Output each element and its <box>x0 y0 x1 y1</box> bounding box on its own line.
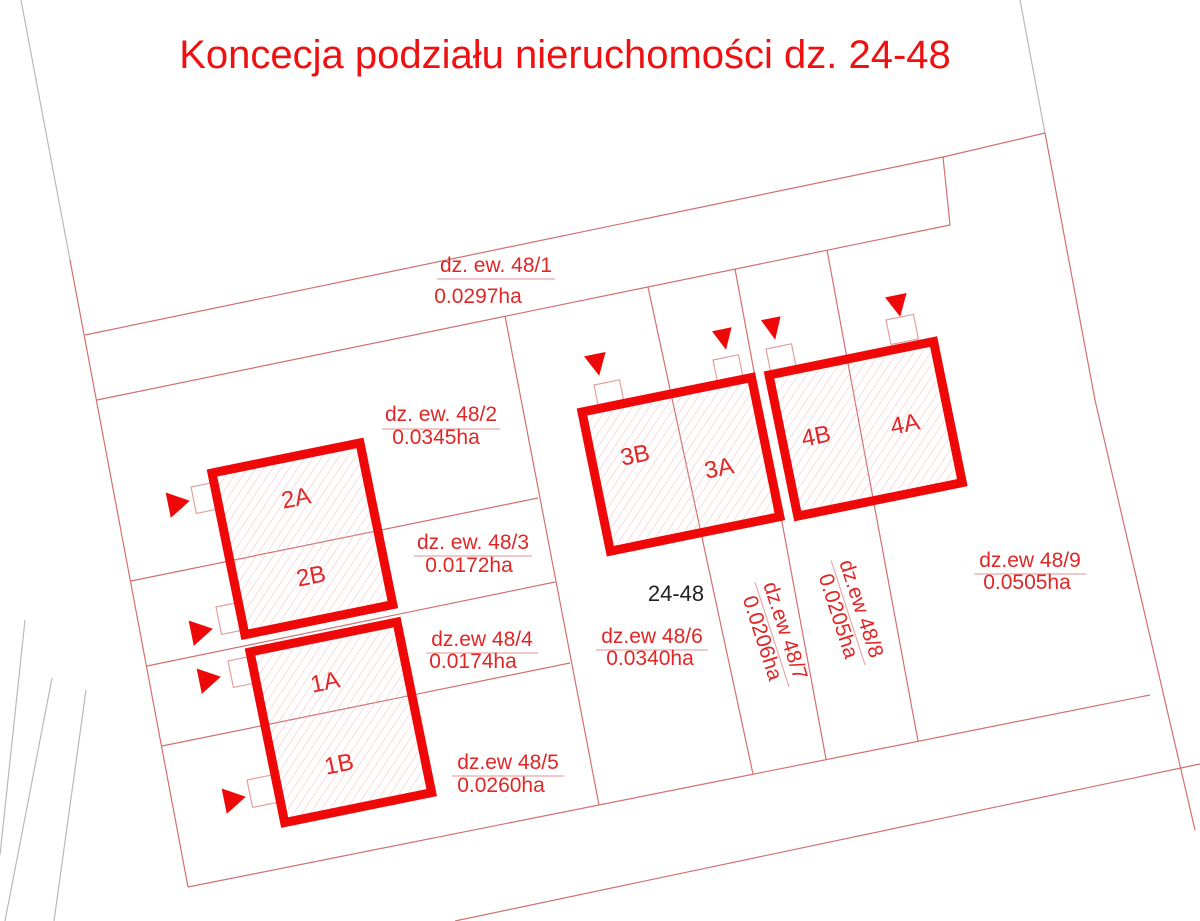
parcel-48-2-label: dz. ew. 48/2 <box>385 403 497 426</box>
parcel-48-1-area: 0.0297ha <box>434 285 522 308</box>
parcel-48-6-label: dz.ew 48/6 <box>601 625 703 648</box>
parcel-48-9-area: 0.0505ha <box>983 571 1071 594</box>
entrance-triangle-icon <box>166 488 193 518</box>
entrance-triangle-icon <box>712 327 736 352</box>
parcel-48-5-area: 0.0260ha <box>457 774 545 797</box>
parcel-48-3-area: 0.0172ha <box>425 554 513 577</box>
parcel-48-4-area: 0.0174ha <box>429 650 517 673</box>
parcel-48-5-label: dz.ew 48/5 <box>457 751 559 774</box>
building-3 <box>582 378 780 552</box>
unit-4B-label: 4B <box>799 420 833 452</box>
building-4 <box>769 342 962 517</box>
strip-east-end-line <box>943 157 950 225</box>
cadastral-division-plan: Koncecja podziału nieruchomości dz. 24-4… <box>0 0 1200 921</box>
unit-4A-label: 4A <box>888 408 922 440</box>
entrance-triangle-icon <box>222 784 249 814</box>
parcel-48-4-label: dz.ew 48/4 <box>431 628 533 651</box>
unit-2B-label: 2B <box>294 560 328 592</box>
parcel-48-9-label: dz.ew 48/9 <box>979 549 1081 572</box>
parcel-48-6-area: 0.0340ha <box>606 647 694 670</box>
unit-1A-label: 1A <box>308 666 342 698</box>
unit-3B-label: 3B <box>618 439 652 471</box>
plan-drawing-svg: Koncecja podziału nieruchomości dz. 24-4… <box>0 0 1200 921</box>
north-boundary-line <box>943 133 1045 157</box>
strip-north-line <box>85 157 943 335</box>
entrance-triangle-icon <box>584 352 610 378</box>
outer-south-line <box>455 764 1200 921</box>
building-1 <box>250 622 432 822</box>
unit-1B-label: 1B <box>322 748 356 780</box>
parcel-48-3-label: dz. ew. 48/3 <box>417 531 529 554</box>
porch-rect <box>886 314 918 344</box>
plan-title: Koncecja podziału nieruchomości dz. 24-4… <box>179 33 951 77</box>
parcel-48-2-area: 0.0345ha <box>392 426 480 449</box>
building-2 <box>212 443 393 635</box>
entrance-triangle-icon <box>189 616 216 646</box>
original-plot-label: 24-48 <box>648 581 704 606</box>
parcel-48-8-label-group: dz.ew 48/8 0.0205ha <box>812 557 888 668</box>
parcel-48-7-label-group: dz.ew 48/7 0.0206ha <box>736 579 812 690</box>
unit-2A-label: 2A <box>279 482 313 514</box>
entrance-triangle-icon <box>761 316 785 342</box>
entrance-triangle-icon <box>885 293 911 319</box>
parcel-48-1-label: dz. ew. 48/1 <box>440 254 552 277</box>
entrance-triangle-icon <box>197 664 224 694</box>
east-boundary-line <box>1045 133 1195 830</box>
divider-485-486 <box>505 316 599 805</box>
unit-3A-label: 3A <box>702 452 736 484</box>
